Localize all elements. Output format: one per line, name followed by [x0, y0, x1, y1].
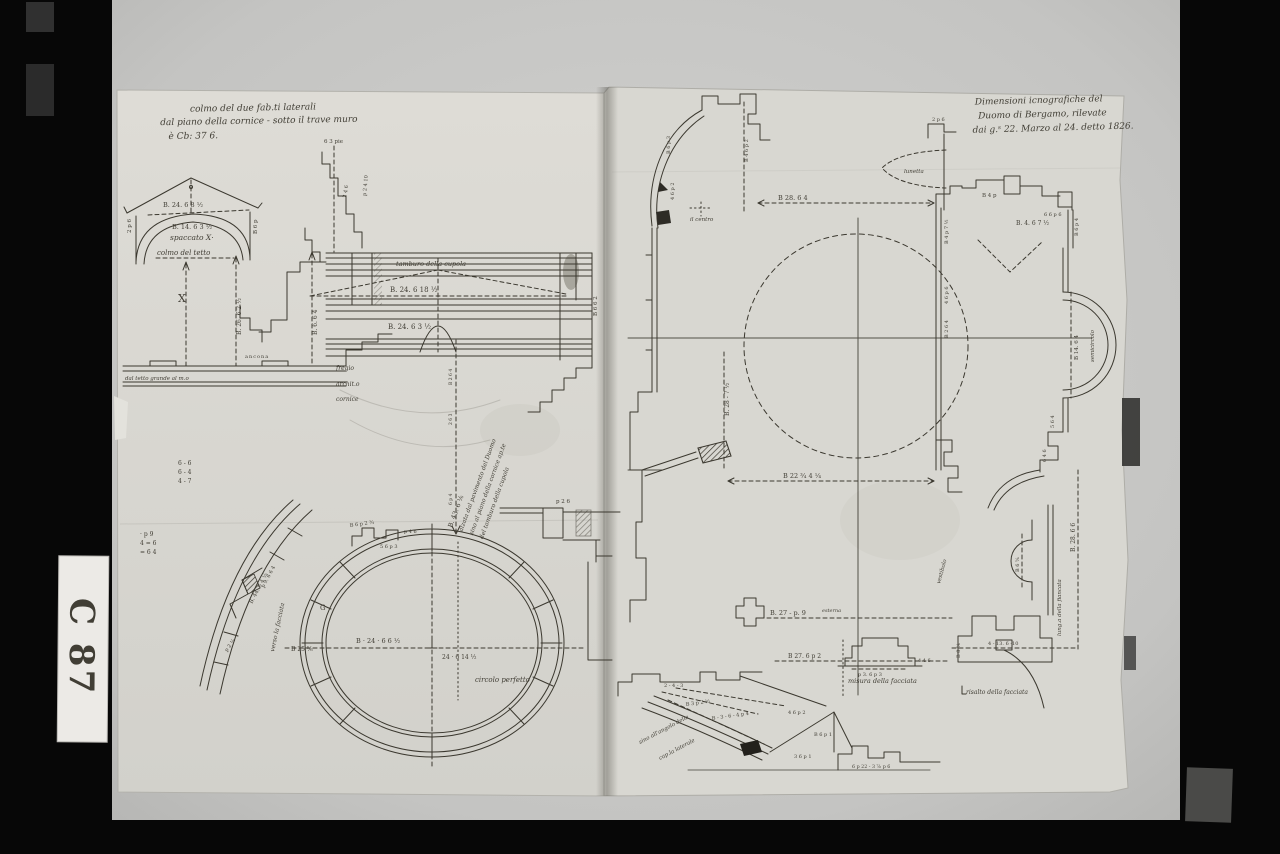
dim-label: 2 p 6 [127, 218, 133, 233]
film-clip [1122, 398, 1140, 466]
dim-label: B. 6. 6 4 [312, 309, 319, 335]
film-bottom-bar [108, 820, 1182, 854]
dim-label: B 27. 6 p 2 [788, 653, 821, 660]
dim-label: 4 - 13. 6 -10 [988, 641, 1018, 647]
dim-label: B. 14. 6 3 ½ [172, 223, 212, 231]
fraction: = 6 4 [140, 549, 157, 556]
fraction: · p 9 [140, 531, 154, 538]
dim-label: 4 6 p 6 [944, 286, 950, 304]
fraction: 6 - 6 [178, 460, 192, 467]
dim-label: B. 24. 6 8 ½ [163, 201, 203, 209]
caption: lunetta [904, 169, 924, 175]
photo-canvas: colmo del due fab.ti laterali dal piano … [0, 0, 1280, 854]
dim-label: B 6 p 3 [666, 136, 672, 154]
fraction: 4 - 7 [178, 478, 192, 485]
caption: spaccato X· [170, 233, 214, 242]
dim-label: 2 6 3 [448, 413, 454, 425]
paper-torn-notch [114, 396, 128, 440]
caption: il centro [690, 217, 714, 223]
caption: circolo perfetto [475, 676, 530, 684]
caption: tamburo della cupola [396, 260, 466, 268]
dim-label: 6 3 pie [324, 139, 343, 145]
film-sprocket [26, 64, 54, 116]
note: dal tetto grande al m.o [125, 376, 189, 382]
dim-label: B 6 ⅚ [1015, 557, 1021, 572]
dim-label: B · 24 · 6 6 ½ [356, 637, 400, 645]
dim-label: B 6 6 2 [593, 296, 599, 316]
dim-label: 2 p 6 [932, 117, 945, 123]
stain [563, 254, 579, 290]
shelf-mark-label: C 87 [57, 556, 109, 742]
film-sprocket [26, 2, 54, 32]
dim-label: 4 6 p 2 [788, 710, 806, 716]
dim-label: B 6 p [253, 219, 259, 234]
dim-label: 4 6 p 2 [670, 182, 676, 200]
caption: risalto della facciata [966, 689, 1028, 696]
dim-label: B 4 p 7 ½ [943, 219, 950, 244]
dim-label: 24 · 6 14 ½ [442, 654, 477, 661]
dim-label: B. 28. 6 6 [1070, 523, 1077, 552]
fold-shadow [596, 87, 618, 796]
dim-label: 4 4 6 [918, 658, 931, 664]
dim-label: p 2 6 [556, 499, 571, 505]
dim-label: B 6 p 1 [814, 732, 832, 738]
dim-label: B 22 ¾ 4 ¼ [783, 472, 822, 480]
dim-label: B 8 ⅚ [956, 643, 962, 658]
part-label: fregio [335, 365, 354, 372]
archival-photograph: colmo del due fab.ti laterali dal piano … [0, 0, 1280, 854]
dim-label: B. 24. 6 18 ½ [390, 286, 438, 294]
dim-label: 5 6 4 [1050, 415, 1056, 428]
dim-label: 3 6 p 1 [794, 754, 812, 760]
caption: colmo del tetto [157, 249, 210, 257]
dim-label: B 14. 6 4 [1074, 334, 1080, 360]
caption: semicircolo [1090, 329, 1096, 362]
dim-label: B 25 ⅚ [291, 646, 313, 653]
dim-label: B. 28 - 7 ½ [724, 383, 731, 416]
dim-label: esterna [822, 608, 841, 614]
inscription-line: è Cb: 37 6. [168, 130, 218, 142]
film-right-bar [1180, 0, 1280, 854]
part-label: archit.o [336, 381, 360, 388]
marker: G [320, 604, 326, 612]
dim-label: B 4 p [982, 193, 997, 199]
caption: lung.a della fiancata [1057, 579, 1063, 636]
shelf-mark-text: C 87 [61, 598, 102, 697]
film-clip [1124, 636, 1136, 670]
caption: misura della facciata [848, 677, 917, 685]
dim-label: B. 4. 6 7 ½ [1016, 220, 1049, 227]
dim-label: B. 27 - p. 9 [770, 609, 806, 617]
dim-label: 6 p 4 [448, 493, 454, 505]
dim-label: B. 24. 6 3 ½ [388, 323, 431, 331]
dim-label: 6 6 p 6 [1044, 212, 1062, 218]
dim-label: 6 4 6 [1042, 449, 1048, 462]
fraction: 4 = 6 [140, 540, 157, 547]
dim-label: p 4 6 [404, 529, 417, 535]
fraction: 6 - 4 [178, 469, 192, 476]
note: ancona [245, 354, 269, 360]
dim-label: B 28. 6 4 [778, 194, 808, 202]
dim-label: B 2 6 4 [448, 369, 454, 385]
dim-label: B 6 p 4 [1074, 218, 1080, 236]
dim-label: 5 6 p 3 [380, 544, 398, 550]
dim-label: 6 p 22 - 3 ⅞ p 6 [852, 764, 890, 770]
paper-right-page [604, 87, 1128, 796]
x-marker: X [178, 292, 186, 305]
dim-label: 2 - 4 - 3 [664, 683, 683, 689]
film-corner-patch [1185, 767, 1233, 823]
dim-label: B 2 6 4 [944, 320, 950, 338]
dim-label: B 4 6 p 2 [744, 139, 750, 162]
